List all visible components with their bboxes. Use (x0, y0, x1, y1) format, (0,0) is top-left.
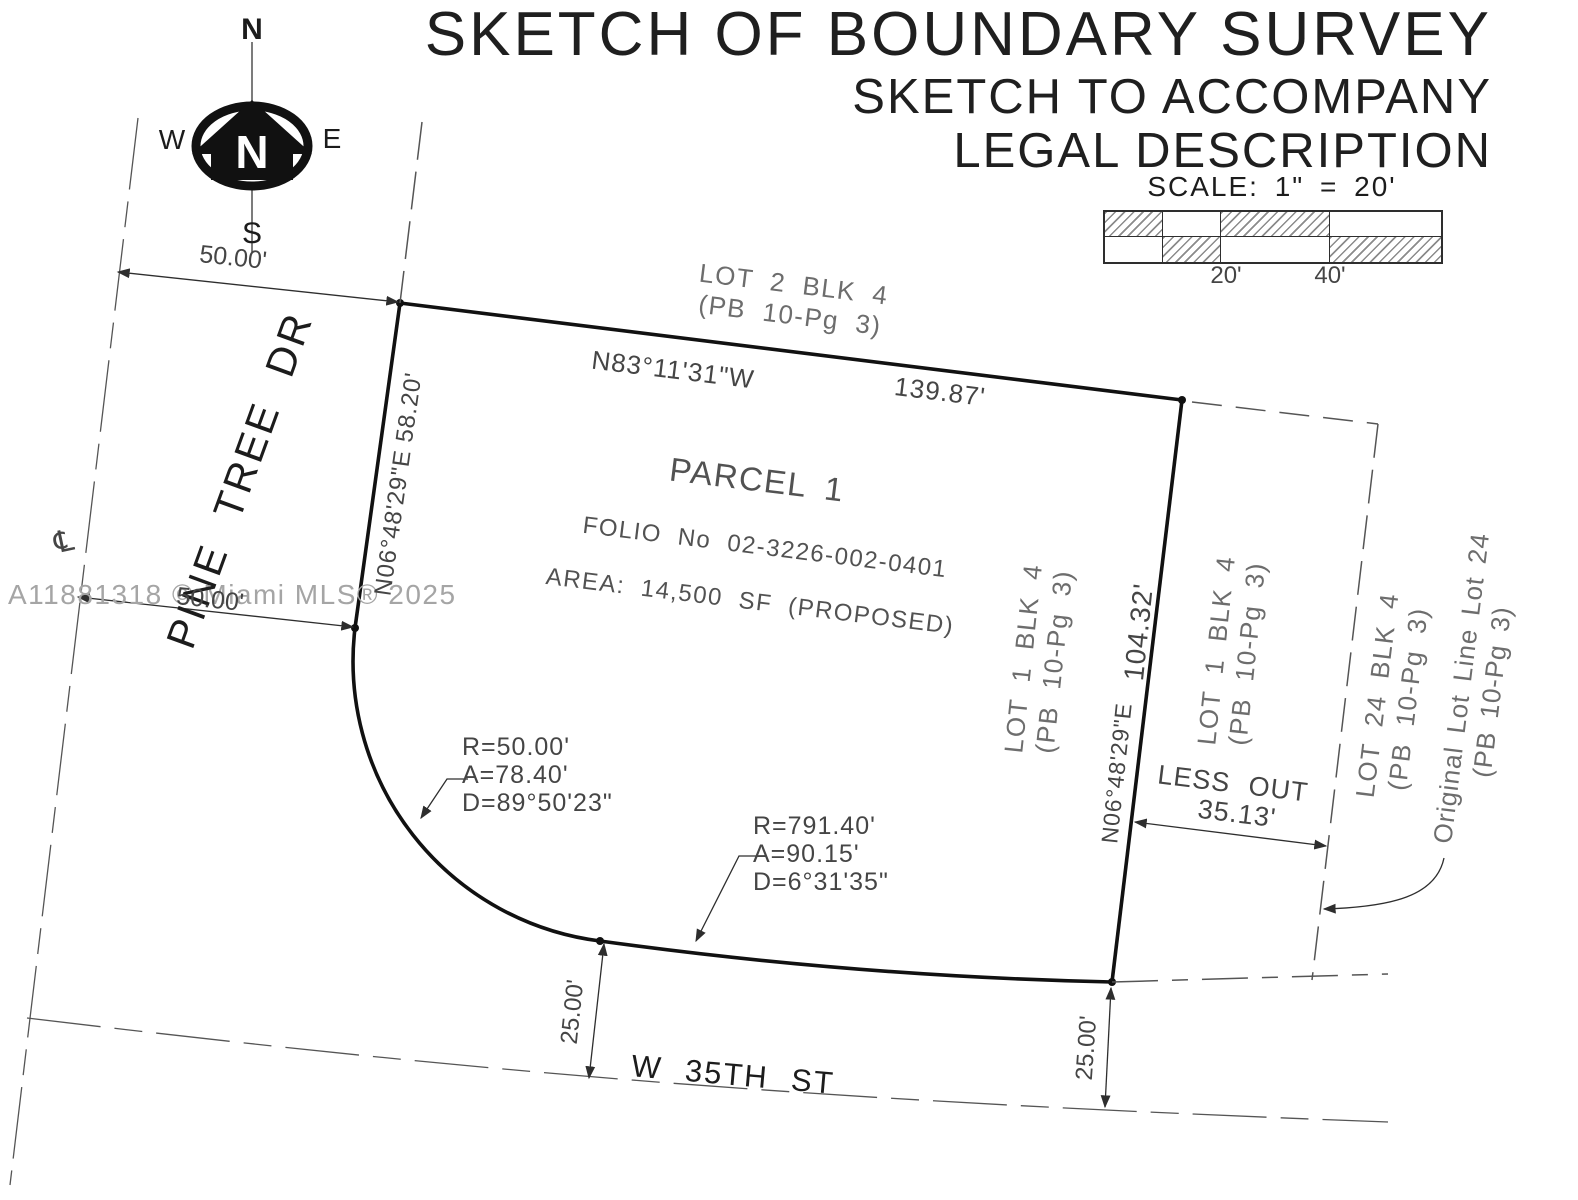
title-block: SKETCH OF BOUNDARY SURVEY SKETCH TO ACCO… (425, 2, 1492, 176)
graphic-scale-bar (1103, 210, 1443, 264)
scale-cell (1330, 237, 1441, 262)
scale-tick-40: 40' (1314, 262, 1345, 290)
curve2-delta: D=6°31'35" (753, 868, 889, 896)
corner-point-s (596, 937, 604, 945)
dimension-row-width-top (118, 272, 398, 302)
curve1-arc: A=78.40' (462, 761, 613, 789)
scale-cell (1105, 237, 1163, 262)
dim-half-row-right: 25.00' (1071, 1015, 1103, 1081)
leader-curve1 (421, 779, 468, 818)
page-title: SKETCH OF BOUNDARY SURVEY (425, 2, 1492, 68)
north-line-extension-dashed (1192, 402, 1378, 424)
curve1-radius: R=50.00' (462, 733, 613, 761)
leader-curve2 (696, 856, 758, 941)
boundary-east-line (1112, 400, 1182, 982)
curve2-data: R=791.40' A=90.15' D=6°31'35" (753, 812, 889, 896)
south-line-extension-dashed (1112, 974, 1388, 982)
scale-tick-20: 20' (1210, 262, 1241, 290)
curve2-arc: A=90.15' (753, 840, 889, 868)
compass-west-label: W (159, 124, 185, 156)
scale-cell (1163, 212, 1221, 237)
curve1-data: R=50.00' A=78.40' D=89°50'23" (462, 733, 613, 817)
leader-original-lot-line (1324, 858, 1444, 909)
dimension-half-row-left (589, 944, 604, 1078)
pine-tree-dr-centerline (10, 118, 138, 1185)
scale-cell (1221, 212, 1330, 237)
scale-cell (1221, 237, 1330, 262)
boundary-south-curve (600, 941, 1112, 982)
subtitle-1: SKETCH TO ACCOMPANY (425, 72, 1492, 122)
compass-north-label: N (241, 13, 263, 47)
corner-point-ne (1178, 396, 1186, 404)
corner-point-w (351, 624, 359, 632)
curve2-radius: R=791.40' (753, 812, 889, 840)
compass-east-label: E (323, 123, 342, 155)
dimension-half-row-right (1105, 988, 1111, 1107)
scale-cell (1105, 212, 1163, 237)
subtitle-2: LEGAL DESCRIPTION (425, 126, 1492, 176)
boundary-survey-sketch: SKETCH OF BOUNDARY SURVEY SKETCH TO ACCO… (0, 0, 1578, 1200)
compass-center-n: N (235, 125, 268, 179)
west-line-extension-dashed (400, 122, 422, 303)
curve1-delta: D=89°50'23" (462, 789, 613, 817)
scale-cell (1330, 212, 1441, 237)
scale-cell (1163, 237, 1221, 262)
scale-label: SCALE: 1" = 20' (1147, 171, 1396, 203)
